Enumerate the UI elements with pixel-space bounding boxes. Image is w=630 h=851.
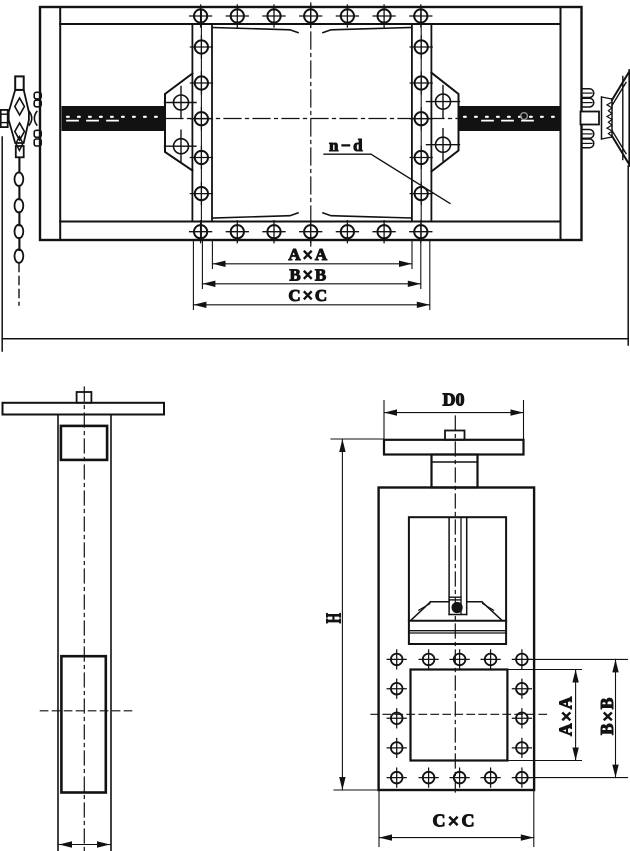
svg-text:D0: D0 — [443, 390, 465, 410]
svg-text:n−d: n−d — [329, 136, 365, 155]
svg-text:B×B: B×B — [597, 696, 619, 735]
svg-text:A×A: A×A — [288, 245, 328, 266]
svg-text:H: H — [321, 613, 345, 624]
svg-text:B×B: B×B — [289, 265, 327, 286]
svg-text:C×C: C×C — [433, 809, 477, 833]
svg-text:A×A: A×A — [556, 695, 578, 736]
svg-text:C×C: C×C — [288, 286, 328, 307]
